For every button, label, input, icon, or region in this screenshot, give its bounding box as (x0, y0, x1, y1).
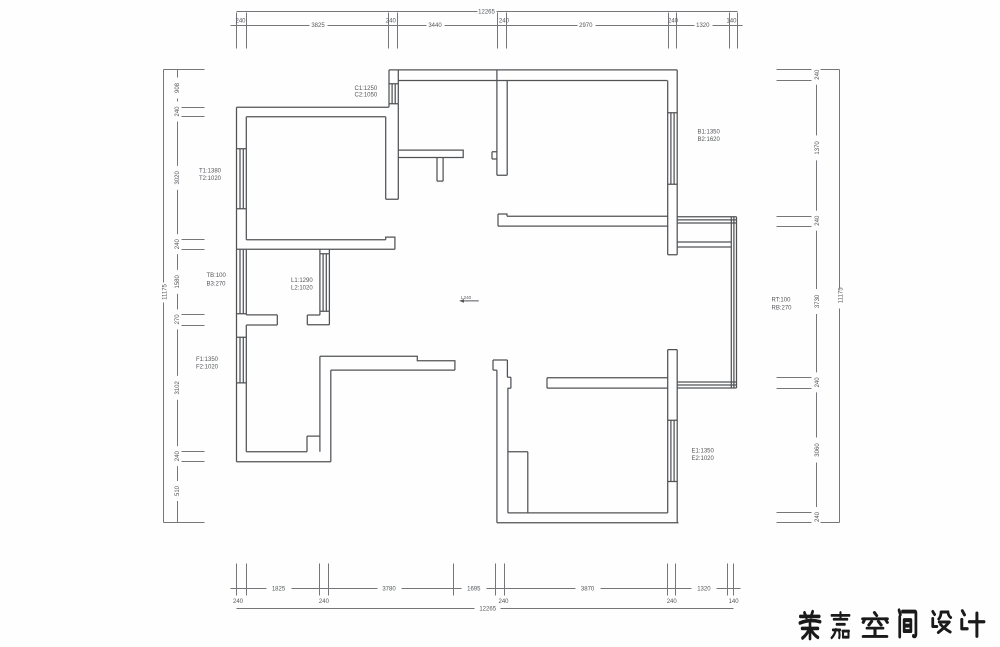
svg-text:E1:1350: E1:1350 (692, 449, 715, 455)
svg-text:L1:1290: L1:1290 (291, 278, 313, 284)
svg-text:908: 908 (175, 82, 181, 93)
svg-text:T1:1380: T1:1380 (199, 169, 222, 175)
svg-text:3780: 3780 (382, 586, 396, 592)
svg-text:12265: 12265 (478, 9, 495, 15)
svg-text:1695: 1695 (467, 586, 481, 592)
svg-text:C1:1250: C1:1250 (355, 86, 378, 92)
svg-text:140: 140 (729, 599, 740, 605)
svg-text:1825: 1825 (272, 586, 286, 592)
svg-text:B2:1620: B2:1620 (698, 137, 721, 143)
svg-text:3730: 3730 (815, 294, 821, 308)
svg-text:3102: 3102 (175, 380, 181, 394)
svg-text:3060: 3060 (815, 443, 821, 457)
svg-text:240: 240 (175, 451, 181, 462)
svg-text:T2:1020: T2:1020 (199, 176, 222, 182)
svg-text:RT:100: RT:100 (772, 298, 792, 304)
svg-text:1580: 1580 (175, 274, 181, 288)
svg-text:E2:1020: E2:1020 (692, 456, 715, 462)
svg-text:140: 140 (726, 18, 737, 24)
svg-text:1320: 1320 (696, 23, 710, 29)
svg-text:240: 240 (815, 377, 821, 388)
svg-text:1370: 1370 (815, 141, 821, 155)
svg-text:11175: 11175 (163, 283, 169, 299)
svg-text:RB:270: RB:270 (772, 306, 793, 312)
svg-text:2970: 2970 (579, 23, 593, 29)
svg-text:240: 240 (667, 599, 678, 605)
svg-text:240: 240 (386, 18, 397, 24)
svg-text:240: 240 (319, 599, 330, 605)
svg-text:B1:1350: B1:1350 (698, 130, 721, 136)
svg-text:240: 240 (815, 69, 821, 80)
svg-text:11175: 11175 (839, 287, 845, 303)
svg-text:B3:270: B3:270 (207, 282, 227, 288)
svg-text:270: 270 (175, 314, 181, 325)
svg-text:240: 240 (175, 106, 181, 117)
svg-text:240: 240 (175, 239, 181, 250)
svg-text:L240: L240 (461, 295, 472, 300)
svg-text:240: 240 (498, 599, 509, 605)
svg-text:1320: 1320 (697, 586, 711, 592)
svg-text:240: 240 (815, 511, 821, 522)
svg-text:3870: 3870 (581, 586, 595, 592)
svg-text:C2:1050: C2:1050 (355, 92, 378, 98)
svg-text:12265: 12265 (479, 607, 496, 613)
svg-text:240: 240 (668, 18, 679, 24)
svg-text:F2:1020: F2:1020 (196, 365, 219, 371)
svg-text:L2:1020: L2:1020 (291, 286, 313, 292)
svg-text:3020: 3020 (175, 170, 181, 184)
svg-text:F1:1350: F1:1350 (196, 357, 219, 363)
svg-text:240: 240 (815, 215, 821, 226)
svg-text:510: 510 (175, 485, 181, 496)
svg-text:3825: 3825 (311, 23, 325, 29)
svg-text:240: 240 (499, 18, 510, 24)
svg-text:3440: 3440 (428, 23, 442, 29)
svg-text:240: 240 (235, 18, 246, 24)
svg-text:TB:100: TB:100 (207, 273, 227, 279)
svg-text:240: 240 (233, 599, 244, 605)
